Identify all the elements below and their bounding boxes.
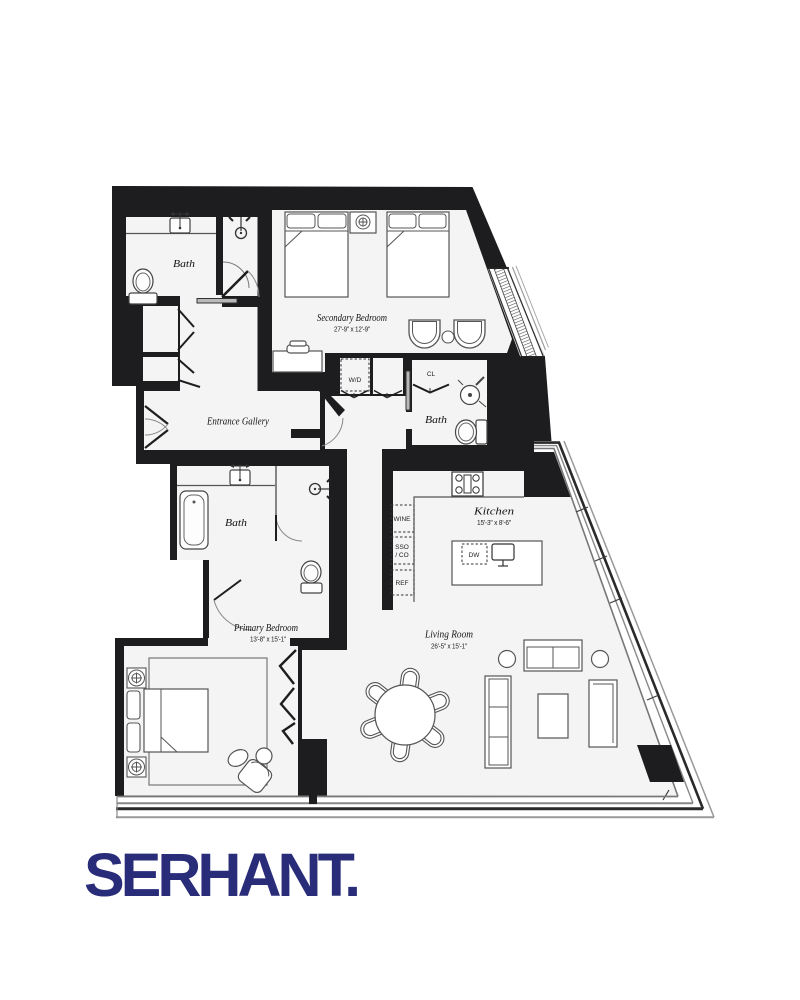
svg-text:W/D: W/D (349, 377, 362, 384)
svg-text:Primary Bedroom: Primary Bedroom (233, 622, 298, 634)
svg-text:Bath: Bath (173, 258, 196, 270)
svg-text:Living Room: Living Room (424, 629, 473, 641)
svg-text:Bath: Bath (225, 517, 248, 529)
svg-text:SSO: SSO (395, 544, 409, 551)
svg-text:Kitchen: Kitchen (473, 506, 515, 518)
svg-text:/ CO: / CO (395, 552, 408, 559)
svg-text:13'-8" x 15'-1": 13'-8" x 15'-1" (250, 635, 286, 644)
svg-text:CL: CL (427, 371, 436, 378)
svg-text:Entrance Gallery: Entrance Gallery (206, 416, 269, 428)
svg-text:Bath: Bath (425, 414, 448, 426)
svg-text:15'-3" x 8'-6": 15'-3" x 8'-6" (477, 518, 511, 527)
svg-text:REF: REF (396, 580, 409, 587)
svg-text:WINE: WINE (394, 516, 412, 523)
svg-text:26'-5" x 15'-1": 26'-5" x 15'-1" (431, 642, 467, 651)
svg-text:Secondary Bedroom: Secondary Bedroom (317, 312, 387, 324)
svg-text:DW: DW (469, 552, 481, 559)
svg-text:27'-9" x 12'-9": 27'-9" x 12'-9" (334, 325, 370, 334)
svg-text:SERHANT.: SERHANT. (84, 841, 357, 909)
